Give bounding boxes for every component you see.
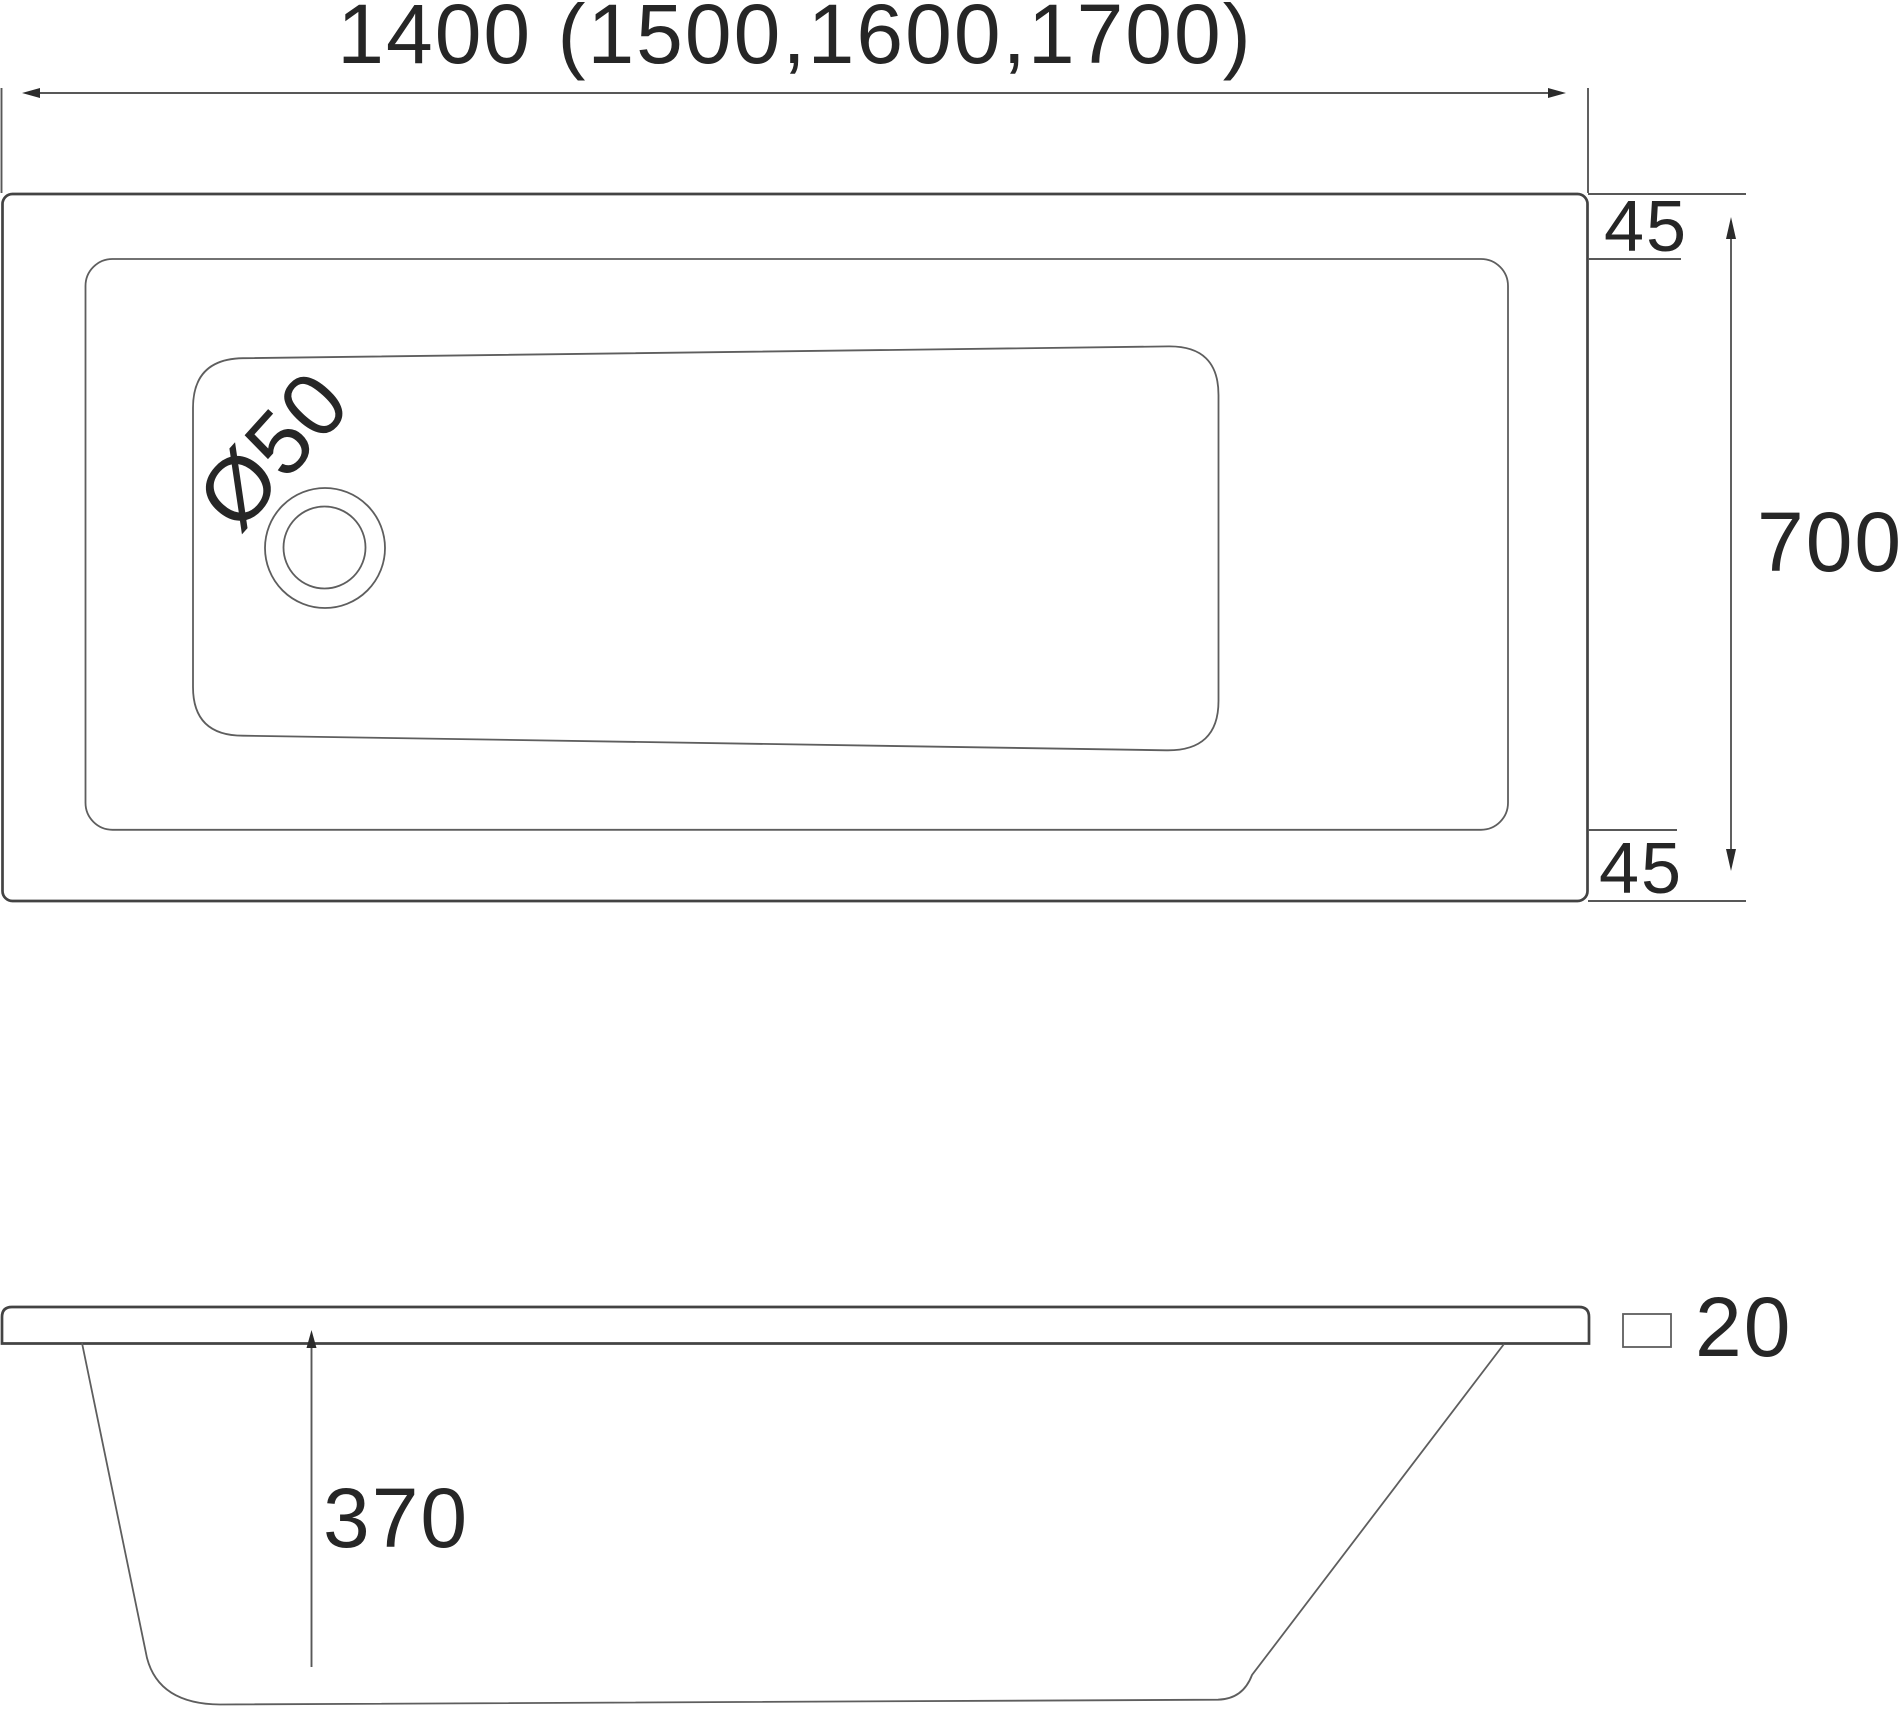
svg-text:700: 700 [1757, 495, 1902, 589]
svg-text:20: 20 [1695, 1280, 1792, 1374]
svg-text:370: 370 [323, 1471, 469, 1565]
svg-text:45: 45 [1599, 829, 1683, 909]
svg-text:1400 (1500,1600,1700): 1400 (1500,1600,1700) [337, 0, 1252, 81]
svg-text:45: 45 [1604, 187, 1688, 267]
